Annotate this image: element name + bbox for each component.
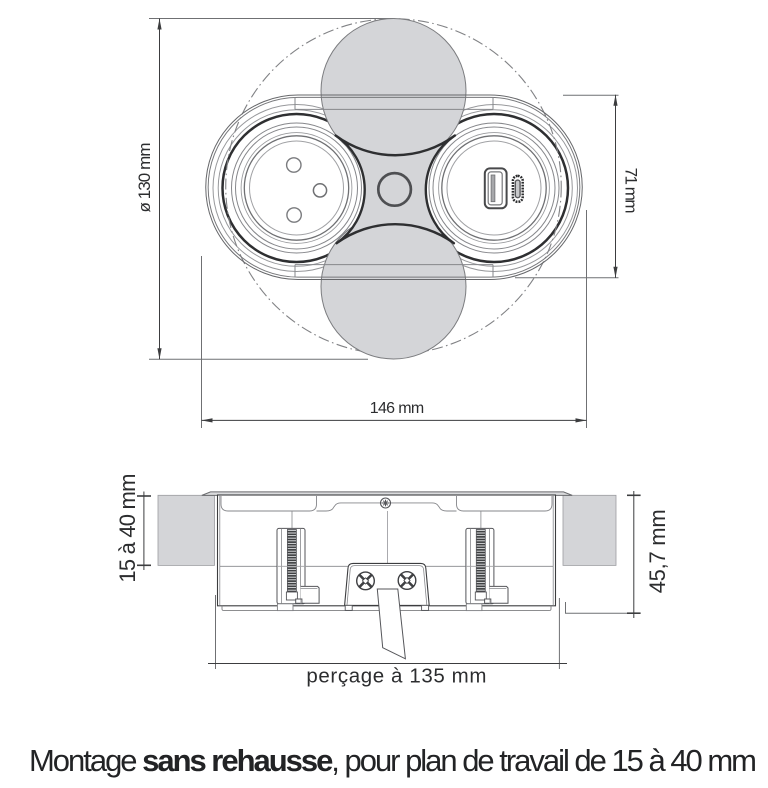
svg-text:146 mm: 146 mm xyxy=(370,400,425,417)
svg-text:15 à 40 mm: 15 à 40 mm xyxy=(115,474,140,583)
svg-text:perçage à 135 mm: perçage à 135 mm xyxy=(306,665,486,688)
svg-text:71 mm: 71 mm xyxy=(622,168,641,214)
svg-text:45,7 mm: 45,7 mm xyxy=(645,509,670,593)
svg-text:ø 130 mm: ø 130 mm xyxy=(135,143,154,213)
svg-text:Montage sans rehausse, pour pl: Montage sans rehausse, pour plan de trav… xyxy=(29,743,757,778)
